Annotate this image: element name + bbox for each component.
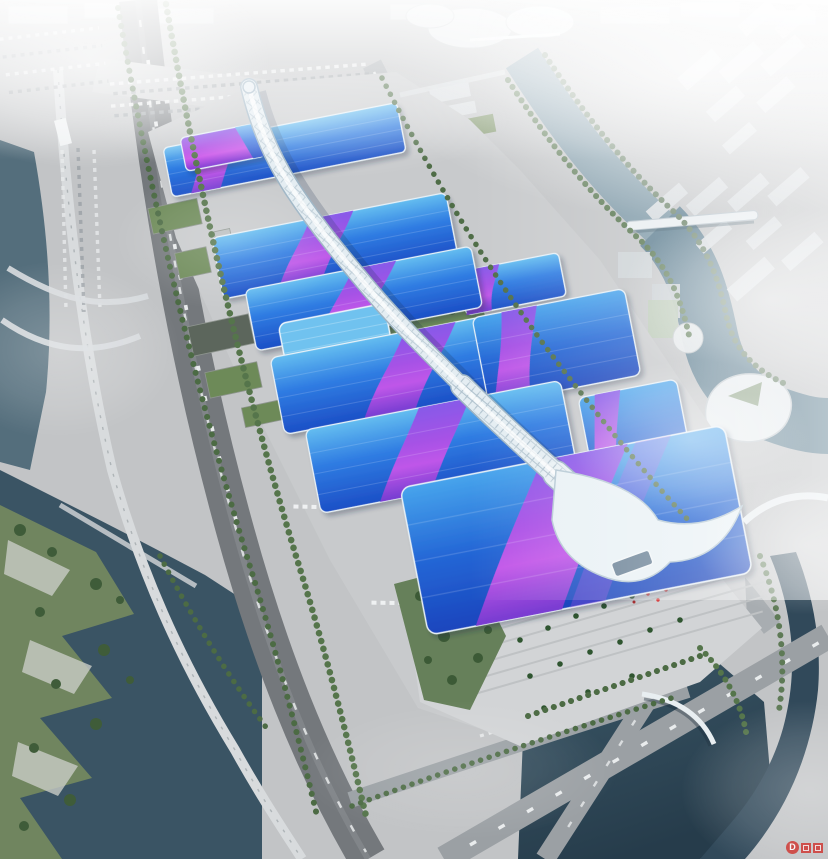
scene-canvas xyxy=(0,0,828,859)
watermark-d-icon: D xyxy=(786,841,799,854)
watermark-logo: D xyxy=(786,841,823,854)
watermark-glyph-icon xyxy=(813,843,823,853)
aerial-rendering: D Aerial rendering of a vast internation… xyxy=(0,0,828,859)
watermark-glyph-icon xyxy=(801,843,811,853)
